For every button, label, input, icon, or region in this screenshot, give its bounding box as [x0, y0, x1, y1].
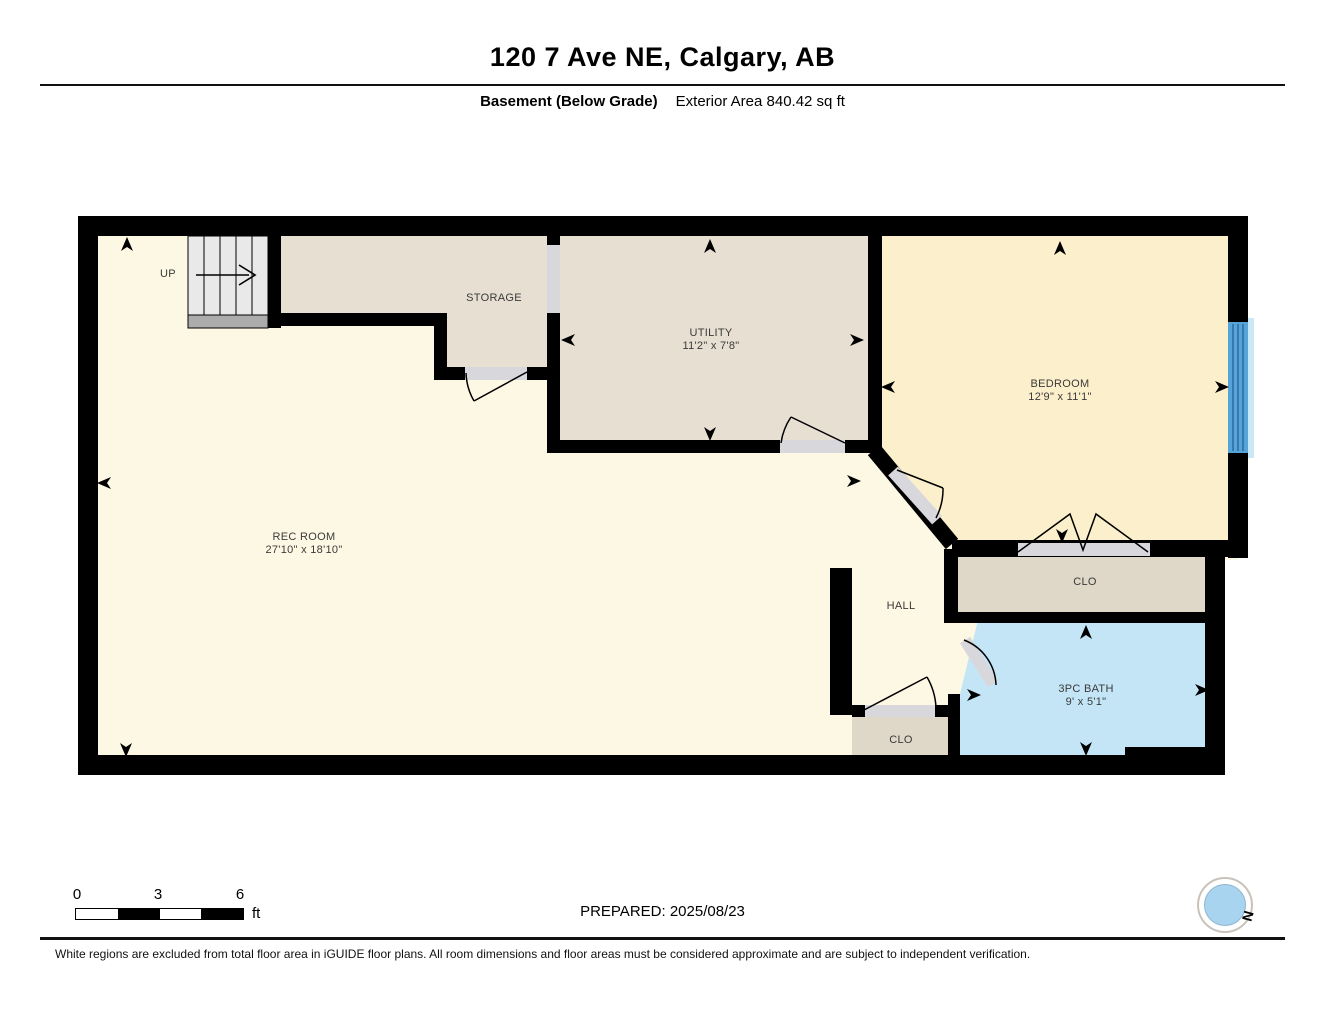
- header-divider: [40, 84, 1285, 86]
- area-label: Exterior Area 840.42 sq ft: [676, 93, 845, 110]
- page-title: 120 7 Ave NE, Calgary, AB: [0, 42, 1325, 73]
- disclaimer-text: White regions are excluded from total fl…: [55, 947, 1155, 961]
- stair-landing: [188, 315, 268, 328]
- bedroom-closet-label: CLO: [1073, 576, 1097, 589]
- scale-tick-0: 0: [73, 886, 81, 903]
- storage-floor-ext: [434, 300, 560, 375]
- hall-closet-label: CLO: [889, 734, 913, 747]
- scale-tick-6: 6: [236, 886, 244, 903]
- storage-label: STORAGE: [466, 292, 522, 305]
- prepared-date: PREPARED: 2025/08/23: [0, 903, 1325, 920]
- stairs-up-label: UP: [160, 268, 176, 281]
- bedroom-label: BEDROOM12'9" x 11'1": [1028, 378, 1091, 404]
- footer-divider: [40, 937, 1285, 940]
- utility-label: UTILITY11'2" x 7'8": [683, 327, 740, 353]
- floor-label: Basement (Below Grade): [480, 93, 658, 110]
- scale-tick-3: 3: [154, 886, 162, 903]
- bedroom-window-icon: [1228, 318, 1254, 458]
- compass-dial: [1204, 884, 1246, 926]
- floor-plan-canvas: [0, 0, 1325, 1024]
- bath-label: 3PC BATH9' x 5'1": [1058, 683, 1113, 709]
- staircase: [188, 236, 268, 328]
- floor-plan-page: 120 7 Ave NE, Calgary, AB Basement (Belo…: [0, 0, 1325, 1024]
- hall-label: HALL: [887, 600, 916, 613]
- rec-room-label: REC ROOM27'10" x 18'10": [265, 531, 342, 557]
- subtitle: Basement (Below Grade)Exterior Area 840.…: [0, 93, 1325, 110]
